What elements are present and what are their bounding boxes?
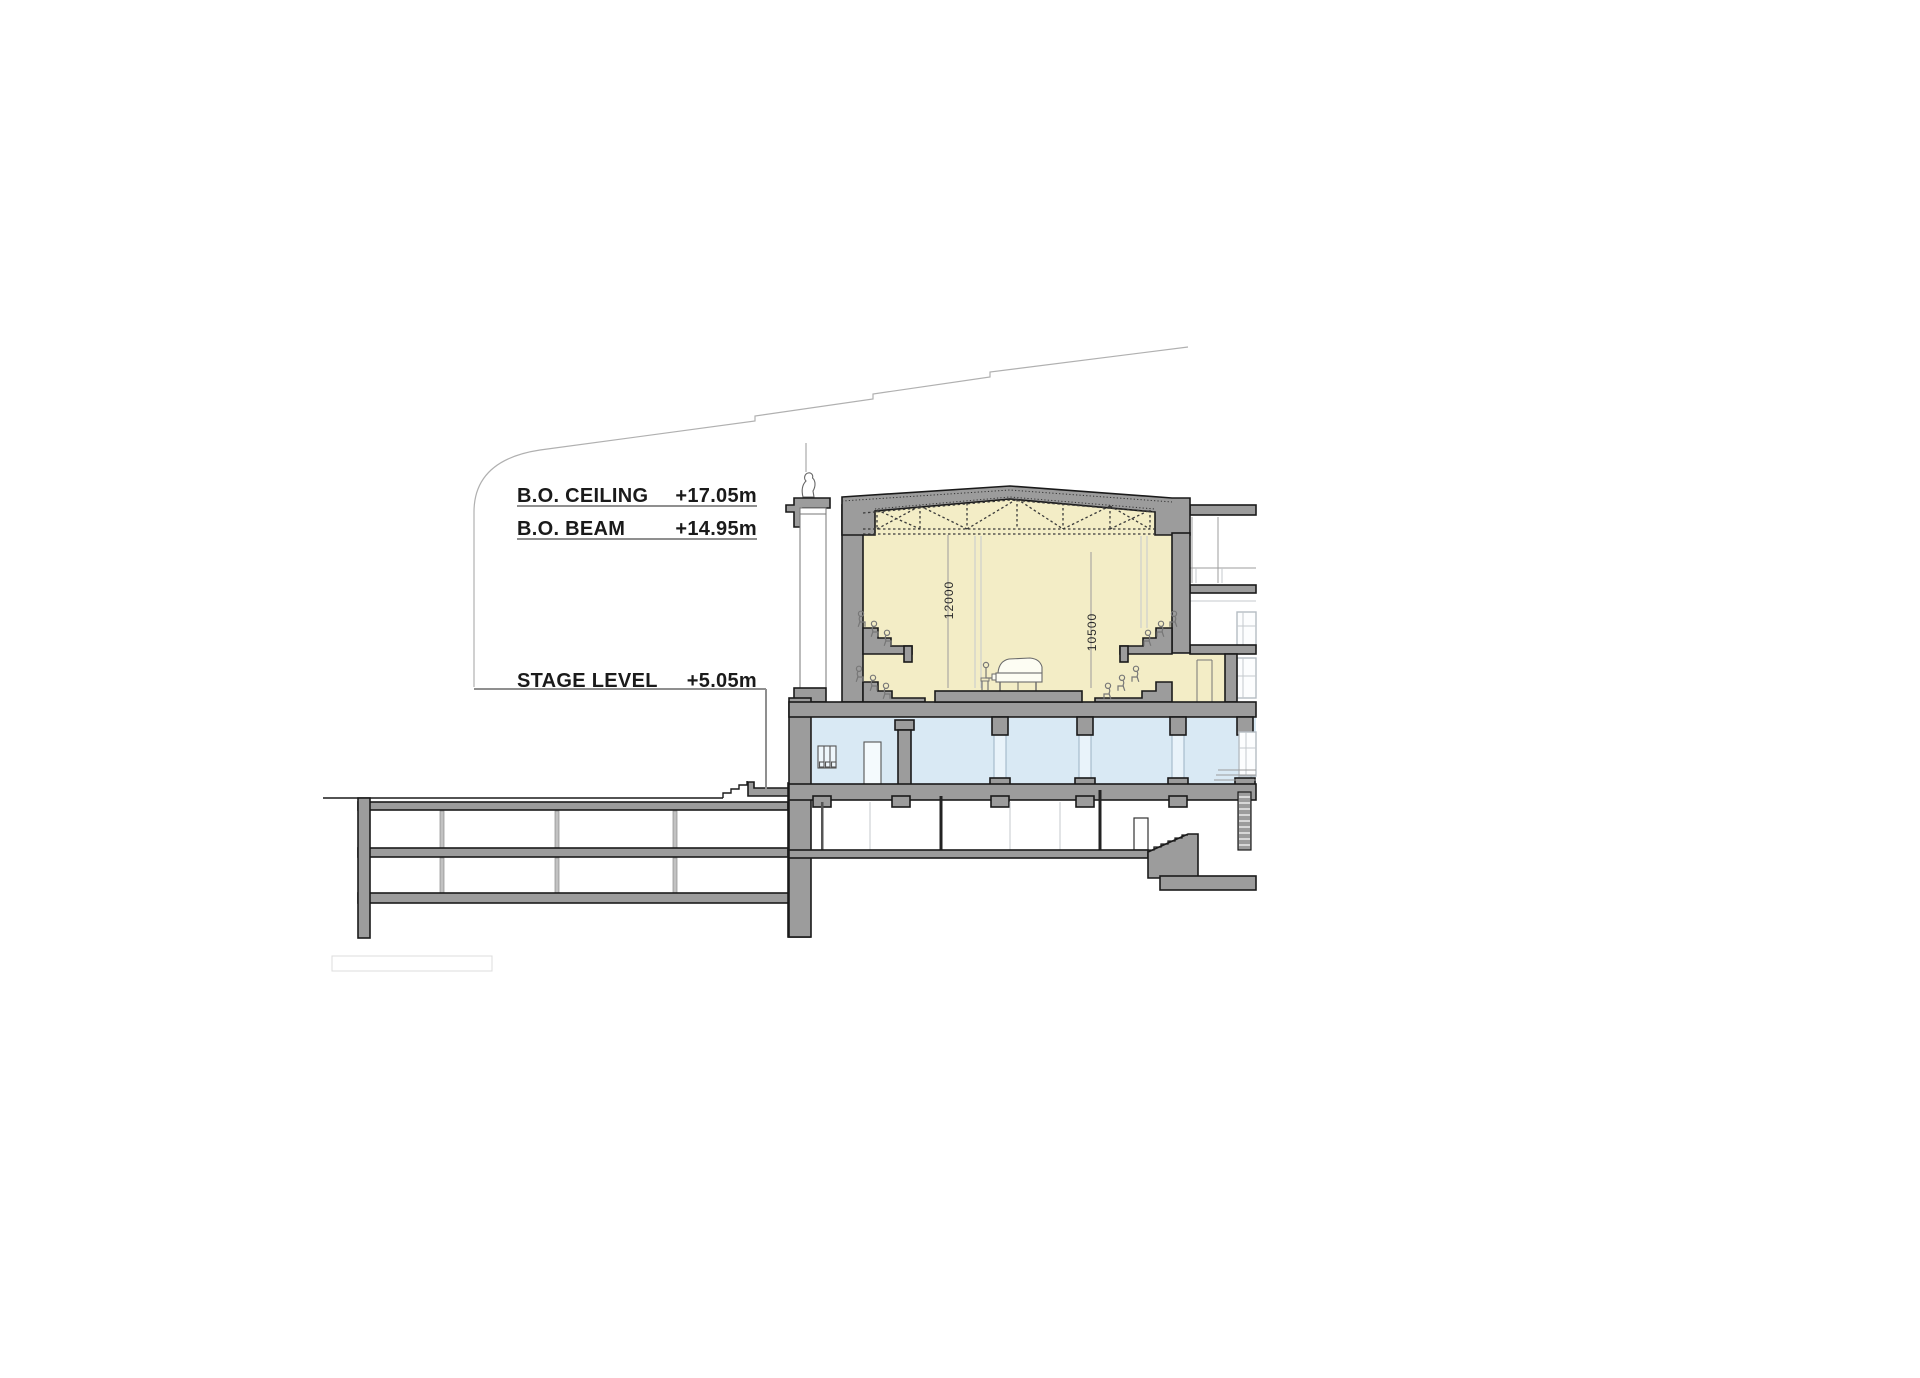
level-value: +14.95m <box>675 518 757 541</box>
annotation-row-bo-ceiling: B.O. CEILING +17.05m <box>517 485 757 508</box>
foyer-cabinet <box>818 746 836 768</box>
level-label: STAGE LEVEL <box>517 670 658 693</box>
garage-left-wall <box>358 798 370 938</box>
dim-hall-height: 12000 <box>942 581 956 619</box>
facade-window <box>1237 612 1256 648</box>
basement-level <box>789 790 1256 890</box>
stage-floor-slab <box>789 702 1256 717</box>
annex-floor-slab <box>1190 645 1256 654</box>
building-left-pier <box>789 698 811 937</box>
side-room-wall <box>1225 654 1237 702</box>
garage-sub-outline <box>332 956 492 971</box>
garage-landing-slab <box>748 782 790 796</box>
basement-wall <box>821 802 824 850</box>
statue <box>802 473 815 497</box>
basement-door <box>1134 818 1148 850</box>
basement-wall <box>1099 790 1102 850</box>
foyer-partition-wall <box>898 730 911 785</box>
dim-stage-opening: 10500 <box>1085 613 1099 651</box>
annotation-row-bo-beam: B.O. BEAM +14.95m <box>517 518 757 541</box>
section-drawing-sheet: 12000 10500 <box>0 0 1920 1378</box>
annex-roof-slab <box>1190 505 1256 515</box>
foyer-door <box>864 742 881 786</box>
shaft-wall-hatched <box>1238 792 1251 850</box>
lower-slab <box>1160 876 1256 890</box>
level-value: +17.05m <box>675 485 757 508</box>
level-label: B.O. CEILING <box>517 485 648 508</box>
garage-roof-slab <box>358 802 788 810</box>
facade-window <box>1237 658 1256 698</box>
foyer-wall-cap <box>895 720 914 730</box>
stage-platform <box>935 691 1082 702</box>
underground-garage <box>323 781 810 971</box>
hall-right-wall <box>1172 533 1190 653</box>
basement-floor-slab <box>789 850 1148 858</box>
garage-bottom-slab <box>358 893 810 903</box>
annotation-row-stage-level: STAGE LEVEL +5.05m <box>517 670 757 693</box>
stagehouse-west-wall-elevation <box>800 508 826 690</box>
level-value: +5.05m <box>687 670 757 693</box>
building-section-svg: 12000 10500 <box>0 0 1920 1378</box>
basement-wall <box>940 796 943 850</box>
level-label: B.O. BEAM <box>517 518 625 541</box>
stage-side-room <box>1172 654 1225 702</box>
annex-floor-slab <box>1190 585 1256 593</box>
annotation-lines <box>474 506 766 789</box>
garage-entry-steps <box>723 781 747 798</box>
garage-mid-slab <box>358 848 788 857</box>
foyer-window <box>1239 732 1256 776</box>
